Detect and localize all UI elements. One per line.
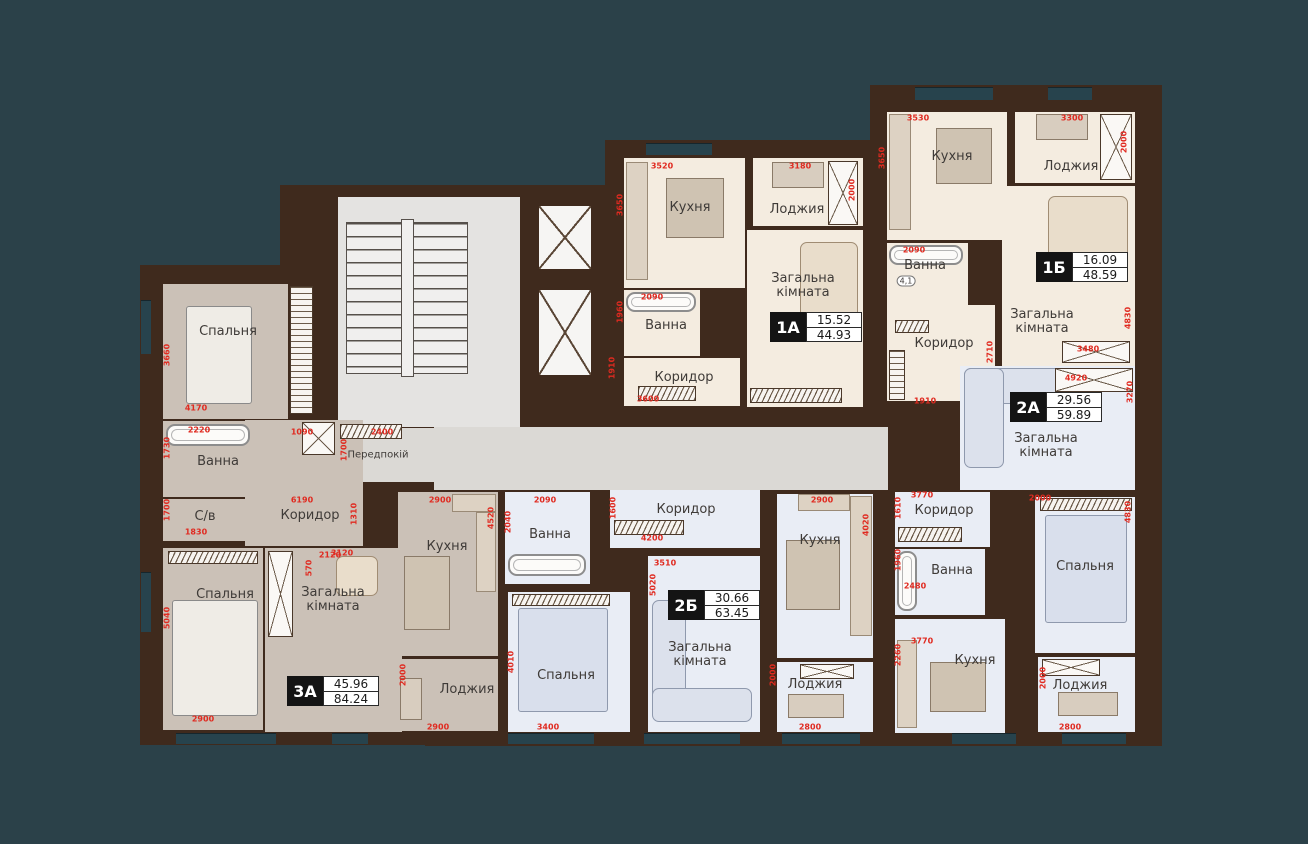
- living-area: 45.96: [324, 677, 378, 692]
- dimension-label: 3770: [911, 637, 933, 646]
- living-area: 16.09: [1073, 253, 1127, 268]
- room-label: Спальня: [196, 588, 254, 602]
- bed-icon: [186, 306, 252, 404]
- room-label: Спальня: [537, 669, 595, 683]
- unit-badge-3А: 3А45.9684.24: [287, 676, 379, 706]
- room-label: Ванна: [645, 319, 687, 333]
- staircase: [346, 222, 468, 374]
- dimension-label: 4830: [1124, 501, 1133, 523]
- dimension-label: 2800: [799, 723, 821, 732]
- balcony-window: [646, 143, 712, 155]
- dimension-label: 3270: [1126, 381, 1135, 403]
- room-label: Коридор: [914, 504, 973, 518]
- living-area: 29.56: [1047, 393, 1101, 408]
- bathtub-icon: [508, 554, 586, 576]
- hatched-wardrobe-icon: [895, 320, 929, 333]
- dimension-label: 4920: [1065, 374, 1087, 383]
- room-label: Кухня: [955, 654, 996, 668]
- slatted-wardrobe-icon: [889, 350, 905, 400]
- balcony-window: [782, 733, 860, 744]
- room-label: Коридор: [656, 503, 715, 517]
- room-label: Лоджия: [770, 203, 825, 217]
- room-label: Коридор: [280, 509, 339, 523]
- unit-areas: 16.0948.59: [1072, 252, 1128, 282]
- room-label: Лоджия: [440, 683, 495, 697]
- room-label: Коридор: [654, 371, 713, 385]
- dimension-label: 5040: [163, 607, 172, 629]
- dimension-label: 5020: [649, 574, 658, 596]
- total-area: 59.89: [1047, 408, 1101, 422]
- dimension-label: 3510: [654, 559, 676, 568]
- dining-table-icon: [404, 556, 450, 630]
- room-label: Кухня: [800, 534, 841, 548]
- living-area: 30.66: [705, 591, 759, 606]
- living-area: 15.52: [807, 313, 861, 328]
- dimension-label: 3600: [637, 395, 659, 404]
- dimension-label: 4010: [507, 651, 516, 673]
- balcony-window: [1048, 87, 1092, 100]
- room-label: Спальня: [199, 325, 257, 339]
- room-label: Ванна: [931, 564, 973, 578]
- unit-badge-2А: 2А29.5659.89: [1010, 392, 1102, 422]
- floor-plan: ПередпокійСпальняВаннаС/вКоридорСпальняЗ…: [0, 0, 1308, 844]
- dimension-label: 2090: [534, 496, 556, 505]
- kitchen-counter-icon: [889, 114, 911, 230]
- room-corridor-2Б: [610, 490, 760, 548]
- room-label: Лоджия: [788, 678, 843, 692]
- dimension-label: 1830: [185, 528, 207, 537]
- dimension-label: 2090: [903, 246, 925, 255]
- dimension-label: 1910: [914, 397, 936, 406]
- unit-areas: 30.6663.45: [704, 590, 760, 620]
- room-label: Ванна: [904, 259, 946, 273]
- room-corridor-common: [434, 427, 888, 490]
- dimension-label: 6190: [291, 496, 313, 505]
- balcony-window: [141, 300, 151, 354]
- unit-id: 3А: [287, 676, 323, 706]
- dimension-label: 1610: [894, 497, 903, 519]
- slatted-wardrobe-icon: [290, 286, 313, 414]
- dimension-label: 2260: [894, 644, 903, 666]
- dimension-label: 3650: [878, 147, 887, 169]
- total-area: 63.45: [705, 606, 759, 620]
- room-label: Кухня: [427, 540, 468, 554]
- dimension-label: 3120: [331, 549, 353, 558]
- dimension-label: 3660: [163, 344, 172, 366]
- dimension-label: 2090: [641, 293, 663, 302]
- dimension-label: 2000: [1120, 131, 1129, 153]
- dimension-label: 3480: [1077, 345, 1099, 354]
- dimension-label: 3530: [907, 114, 929, 123]
- balcony-window: [176, 733, 276, 744]
- bed-icon: [172, 600, 258, 716]
- dimension-label: 1960: [616, 301, 625, 323]
- unit-badge-1А: 1А15.5244.93: [770, 312, 862, 342]
- dimension-label: 4200: [641, 534, 663, 543]
- room-label: Коридор: [914, 337, 973, 351]
- unit-areas: 45.9684.24: [323, 676, 379, 706]
- desk-icon: [788, 694, 844, 718]
- unit-id: 2Б: [668, 590, 704, 620]
- dimension-label: 2400: [371, 428, 393, 437]
- room-label: Загальна кімната: [1009, 432, 1083, 460]
- dimension-label: 3770: [911, 491, 933, 500]
- dimension-label: 2000: [848, 179, 857, 201]
- room-label: Кухня: [932, 150, 973, 164]
- balcony-window: [644, 733, 740, 744]
- dimension-label: 570: [305, 560, 314, 577]
- room-label: Передпокій: [347, 451, 408, 462]
- balcony-window: [1062, 733, 1126, 744]
- crossed-wardrobe-icon: [268, 551, 293, 637]
- total-area: 48.59: [1073, 268, 1127, 282]
- unit-areas: 29.5659.89: [1046, 392, 1102, 422]
- unit-id: 1Б: [1036, 252, 1072, 282]
- room-label: Загальна кімната: [296, 586, 370, 614]
- dimension-label: 1310: [350, 503, 359, 525]
- dimension-label: 2800: [1059, 723, 1081, 732]
- unit-badge-2Б: 2Б30.6663.45: [668, 590, 760, 620]
- dimension-label: 4170: [185, 404, 207, 413]
- dimension-label: 2000: [769, 664, 778, 686]
- elevator-shaft-icon: [537, 204, 593, 271]
- room-label: Загальна кімната: [663, 641, 737, 669]
- room-label: Кухня: [670, 201, 711, 215]
- dimension-label: 2040: [504, 511, 513, 533]
- hatched-wardrobe-icon: [898, 527, 962, 542]
- room-label: Ванна: [529, 528, 571, 542]
- dimension-label: 2710: [986, 341, 995, 363]
- balcony-window: [915, 87, 993, 100]
- sofa-icon: [652, 688, 752, 722]
- unit-id: 2А: [1010, 392, 1046, 422]
- unit-id: 1А: [770, 312, 806, 342]
- room-label: С/в: [194, 510, 215, 524]
- dimension-label: 2000: [1029, 494, 1051, 503]
- dimension-label: 3520: [651, 162, 673, 171]
- bed-icon: [518, 608, 608, 712]
- room-label: Ванна: [197, 455, 239, 469]
- room-label: Лоджия: [1044, 160, 1099, 174]
- dimension-label: 1090: [291, 428, 313, 437]
- room-label: Загальна кімната: [766, 272, 840, 300]
- dimension-label: 2480: [904, 582, 926, 591]
- kitchen-counter-icon: [626, 162, 648, 280]
- dimension-label: 2900: [811, 496, 833, 505]
- balcony-window: [332, 733, 368, 744]
- room-label: Спальня: [1056, 560, 1114, 574]
- dimension-label: 1730: [163, 437, 172, 459]
- sofa-icon: [964, 368, 1004, 468]
- dimension-label: 4020: [862, 514, 871, 536]
- hatched-wardrobe-icon: [1040, 498, 1132, 511]
- dimension-label: 2000: [399, 664, 408, 686]
- dimension-label: 3650: [616, 194, 625, 216]
- area-note: 4,1: [897, 276, 916, 287]
- crossed-wardrobe-icon: [1042, 659, 1100, 676]
- room-label: Лоджия: [1053, 679, 1108, 693]
- dimension-label: 2900: [192, 715, 214, 724]
- total-area: 84.24: [324, 692, 378, 706]
- dimension-label: 2000: [1039, 667, 1048, 689]
- dimension-label: 1960: [894, 549, 903, 571]
- dimension-label: 4520: [487, 507, 496, 529]
- balcony-window: [952, 733, 1016, 744]
- dimension-label: 1600: [609, 497, 618, 519]
- dimension-label: 1700: [163, 499, 172, 521]
- hatched-wardrobe-icon: [750, 388, 842, 403]
- dimension-label: 2900: [429, 496, 451, 505]
- balcony-window: [508, 733, 594, 744]
- dimension-label: 2220: [188, 426, 210, 435]
- hatched-wardrobe-icon: [168, 551, 258, 564]
- unit-areas: 15.5244.93: [806, 312, 862, 342]
- dimension-label: 1700: [340, 439, 349, 461]
- dining-table-icon: [786, 540, 840, 610]
- dimension-label: 3180: [789, 162, 811, 171]
- dimension-label: 3400: [537, 723, 559, 732]
- balcony-window: [141, 572, 151, 632]
- desk-icon: [1058, 692, 1118, 716]
- unit-badge-1Б: 1Б16.0948.59: [1036, 252, 1128, 282]
- elevator-shaft-icon: [537, 288, 593, 377]
- room-label: Загальна кімната: [1005, 308, 1079, 336]
- dimension-label: 3300: [1061, 114, 1083, 123]
- dimension-label: 4830: [1124, 307, 1133, 329]
- hatched-wardrobe-icon: [512, 594, 610, 606]
- dimension-label: 2900: [427, 723, 449, 732]
- total-area: 44.93: [807, 328, 861, 342]
- dining-table-icon: [930, 662, 986, 712]
- dimension-label: 1910: [608, 357, 617, 379]
